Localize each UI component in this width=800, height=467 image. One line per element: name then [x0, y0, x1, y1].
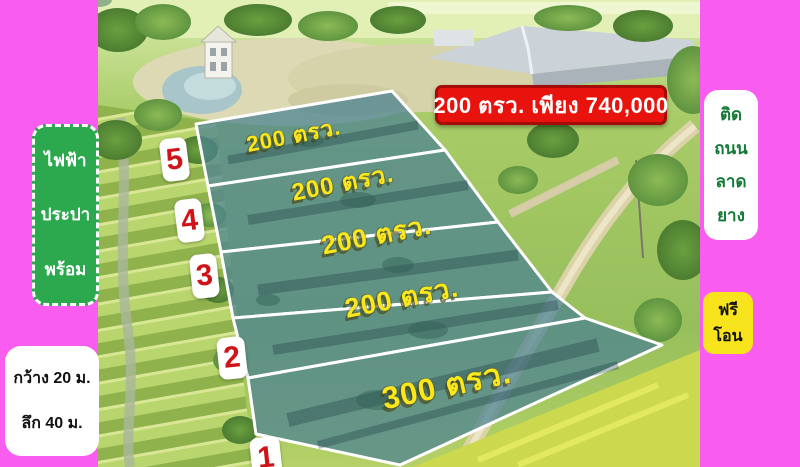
free-line-2: โอน	[713, 324, 742, 349]
road-line-2: ถนน	[714, 135, 748, 162]
price-banner: 200 ตรว. เพียง 740,000	[435, 85, 667, 125]
road-line-3: ลาด	[715, 168, 746, 195]
price-banner-text: 200 ตรว. เพียง 740,000	[433, 88, 668, 123]
dimension-width: กว้าง 20 ม.	[13, 366, 90, 391]
dimensions-box: กว้าง 20 ม. ลึก 40 ม.	[5, 346, 99, 456]
plot-2-badge: 2	[216, 336, 248, 381]
plot-5-badge: 5	[158, 137, 190, 183]
road-line-1: ติด	[720, 101, 742, 128]
utilities-line-electricity: ไฟฟ้า	[44, 147, 86, 174]
dimension-depth: ลึก 40 ม.	[21, 411, 82, 436]
road-line-4: ยาง	[717, 202, 745, 229]
free-line-1: ฟรี	[718, 298, 738, 323]
utilities-line-water: ประปา	[41, 201, 90, 228]
utilities-box: ไฟฟ้า ประปา พร้อม	[32, 124, 99, 306]
plot-1-badge: 1	[249, 436, 283, 467]
utilities-line-ready: พร้อม	[45, 256, 87, 283]
paved-road-box: ติด ถนน ลาด ยาง	[704, 90, 758, 240]
plot-3-badge: 3	[189, 253, 220, 300]
land-sale-flyer: 200 ตรว. เพียง 740,000 ไฟฟ้า ประปา พร้อม…	[0, 0, 800, 467]
free-transfer-box: ฟรี โอน	[703, 292, 753, 354]
plot-4-badge: 4	[173, 198, 205, 244]
